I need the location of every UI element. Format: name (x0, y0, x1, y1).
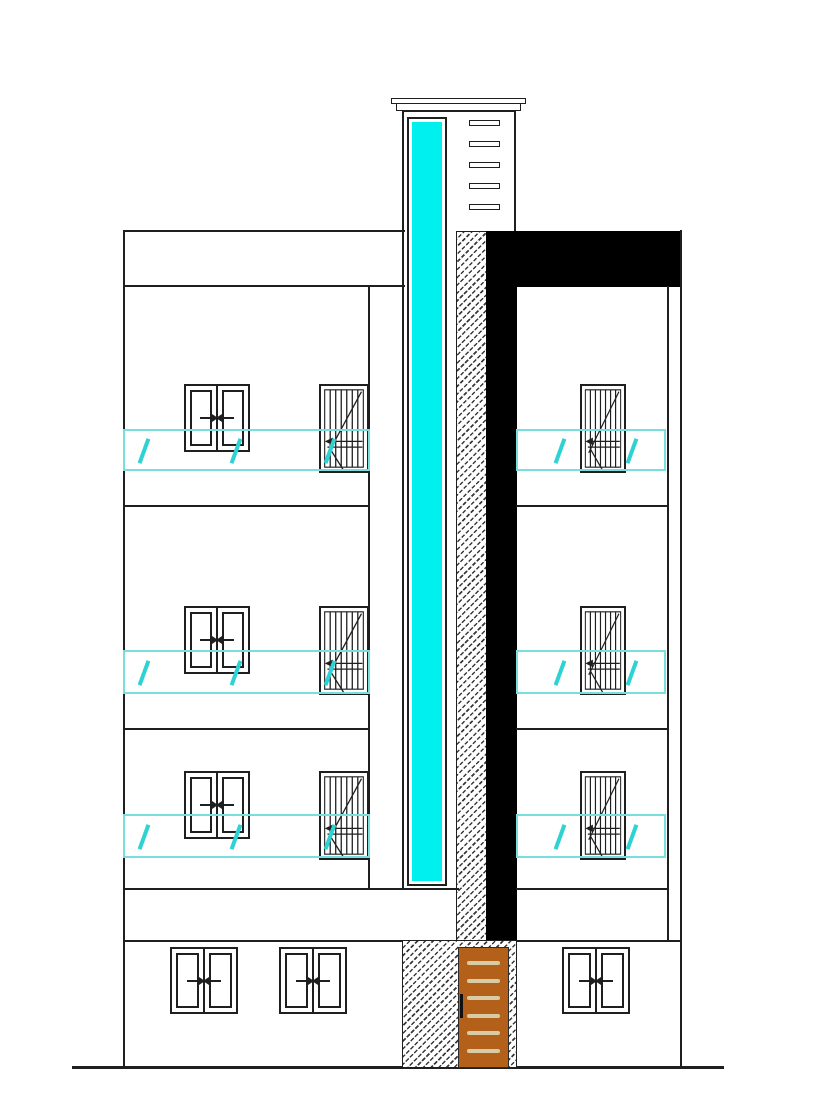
glass-slash-icon (138, 660, 151, 686)
louver-stack (469, 120, 500, 212)
ground-line (72, 1066, 724, 1069)
left-roof-edge (123, 230, 405, 232)
door-panel-stripe (467, 961, 500, 965)
beam-line-left (123, 888, 459, 890)
glass-slash-icon (626, 438, 639, 464)
right-building-wall (680, 230, 682, 1068)
glass-slash-icon (626, 824, 639, 850)
slide-direction-arrow-icon (209, 980, 221, 982)
glass-slash-icon (138, 438, 151, 464)
slide-direction-arrow-icon (200, 639, 212, 641)
glass-balustrade-f3-right (516, 814, 666, 858)
tower-louver-slat (469, 204, 500, 210)
elevation-drawing (0, 0, 828, 1116)
shaft-black-column (486, 231, 517, 941)
floor-line-1-right (516, 505, 668, 507)
door-panel-stripe (467, 1014, 500, 1018)
glass-balustrade-f1-right (516, 429, 666, 471)
floor-line-2-left (123, 728, 370, 730)
ground-window-1 (170, 947, 238, 1014)
tower-louver-slat (469, 141, 500, 147)
slide-direction-arrow-icon (222, 417, 234, 419)
tower-louver-slat (469, 162, 500, 168)
glass-slash-icon (230, 660, 243, 686)
glass-slash-icon (626, 660, 639, 686)
slide-direction-arrow-icon (318, 980, 330, 982)
floor-line-2-right (516, 728, 668, 730)
glass-balustrade-f2-right (516, 650, 666, 694)
glass-balustrade-f3-left (123, 814, 370, 858)
slide-direction-arrow-icon (222, 639, 234, 641)
glass-slash-icon (324, 438, 337, 464)
slide-direction-arrow-icon (296, 980, 308, 982)
tower-louver-slat (469, 120, 500, 126)
glass-slash-icon (230, 824, 243, 850)
left-parapet-line (123, 285, 405, 287)
slide-direction-arrow-icon (200, 804, 212, 806)
door-handle (460, 994, 463, 1018)
slide-direction-arrow-icon (200, 417, 212, 419)
ground-floor-line-left (123, 940, 403, 942)
tower-glass-panel (412, 122, 442, 881)
entrance-door (458, 947, 509, 1068)
glass-balustrade-f1-left (123, 429, 370, 471)
ground-floor-line-right (516, 940, 682, 942)
recess-line-right (667, 286, 669, 942)
beam-line-right (516, 888, 668, 890)
glass-slash-icon (554, 660, 567, 686)
slide-direction-arrow-icon (222, 804, 234, 806)
ground-window-3 (562, 947, 630, 1014)
tower-glass-frame (407, 117, 447, 886)
door-panel-stripe (467, 1031, 500, 1035)
slide-direction-arrow-icon (579, 980, 591, 982)
glass-slash-icon (554, 438, 567, 464)
ground-window-2 (279, 947, 347, 1014)
slide-direction-arrow-icon (187, 980, 199, 982)
glass-slash-icon (230, 438, 243, 464)
glass-slash-icon (554, 824, 567, 850)
glass-slash-icon (324, 660, 337, 686)
glass-slash-icon (324, 824, 337, 850)
door-panel-stripe (467, 996, 500, 1000)
glass-slash-icon (138, 824, 151, 850)
left-building-wall (123, 230, 125, 1068)
glass-balustrade-f2-left (123, 650, 370, 694)
slide-direction-arrow-icon (601, 980, 613, 982)
door-panel-stripe (467, 1049, 500, 1053)
shaft-hatch-column (456, 231, 487, 941)
door-panel-stripe (467, 979, 500, 983)
tower-louver-slat (469, 183, 500, 189)
floor-line-1-left (123, 505, 370, 507)
